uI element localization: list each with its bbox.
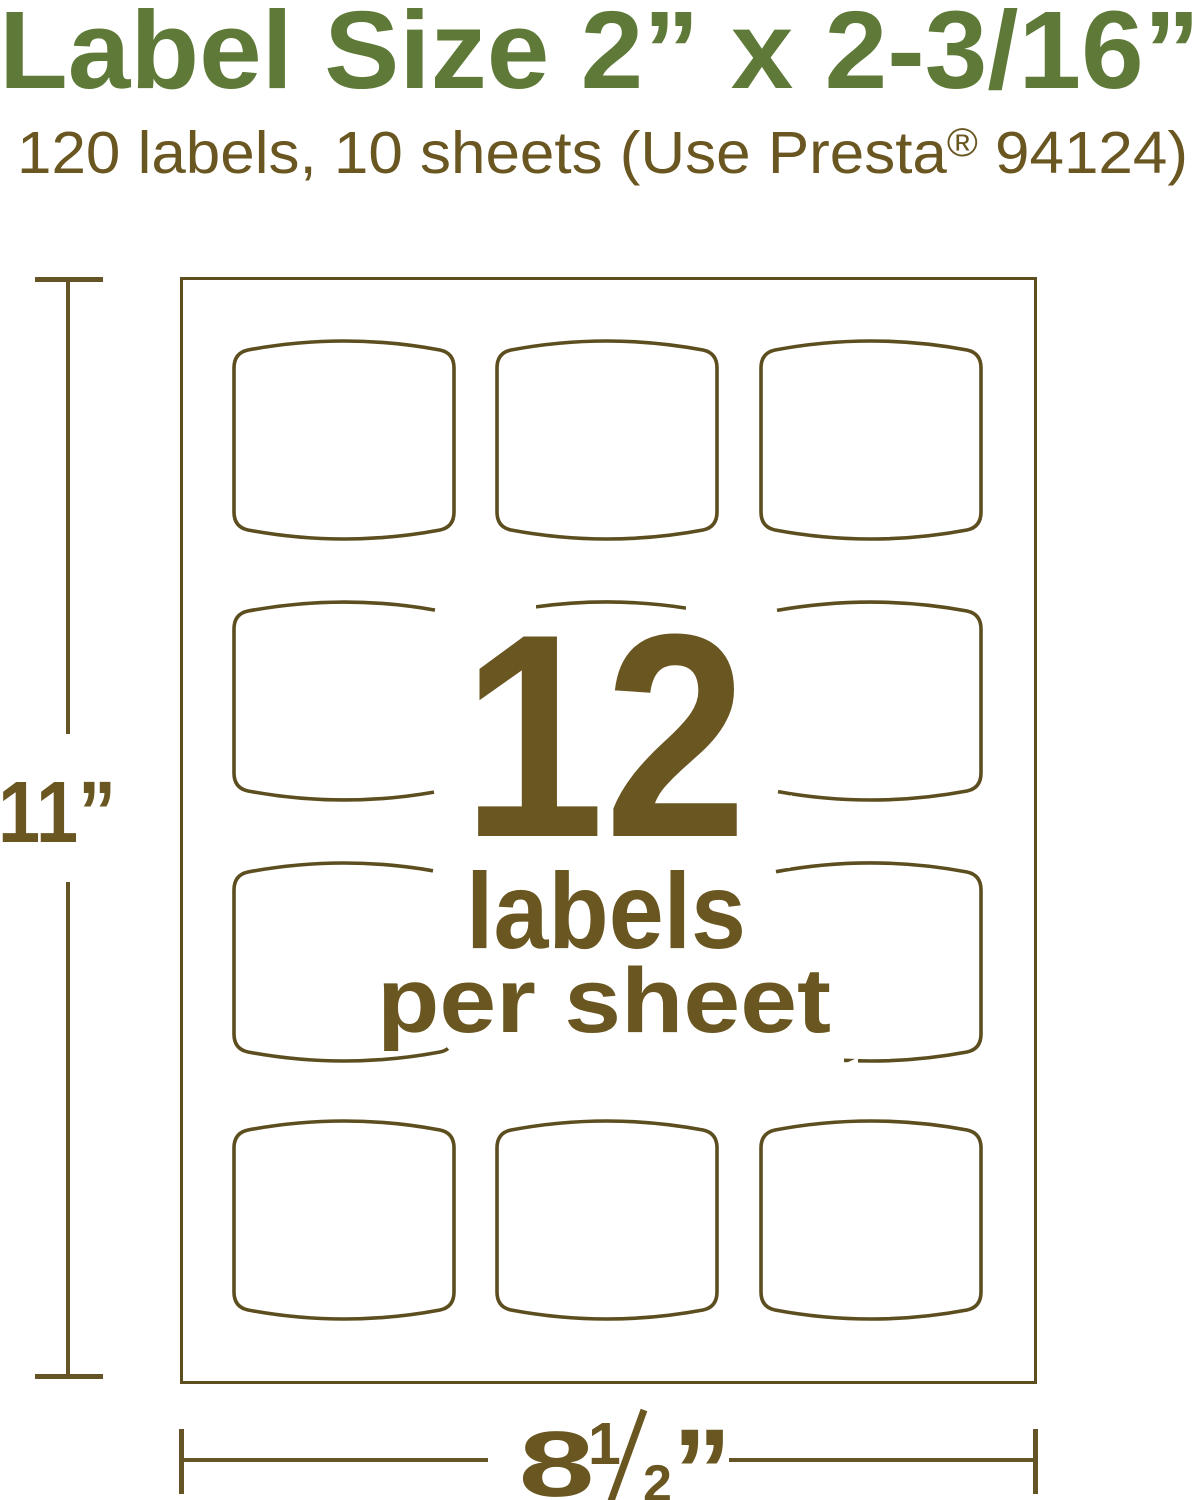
- svg-text:2: 2: [643, 1455, 672, 1500]
- svg-text:120 labels, 10 sheets (Use Pre: 120 labels, 10 sheets (Use Presta® 94124…: [17, 120, 1188, 186]
- svg-text:Label Size 2” x 2-3/16”: Label Size 2” x 2-3/16”: [0, 0, 1200, 112]
- svg-text:11”: 11”: [0, 764, 116, 861]
- svg-text:1: 1: [588, 1411, 621, 1477]
- svg-text:per sheet: per sheet: [377, 950, 831, 1052]
- svg-text:8: 8: [519, 1412, 595, 1500]
- svg-text:”: ”: [673, 1405, 732, 1500]
